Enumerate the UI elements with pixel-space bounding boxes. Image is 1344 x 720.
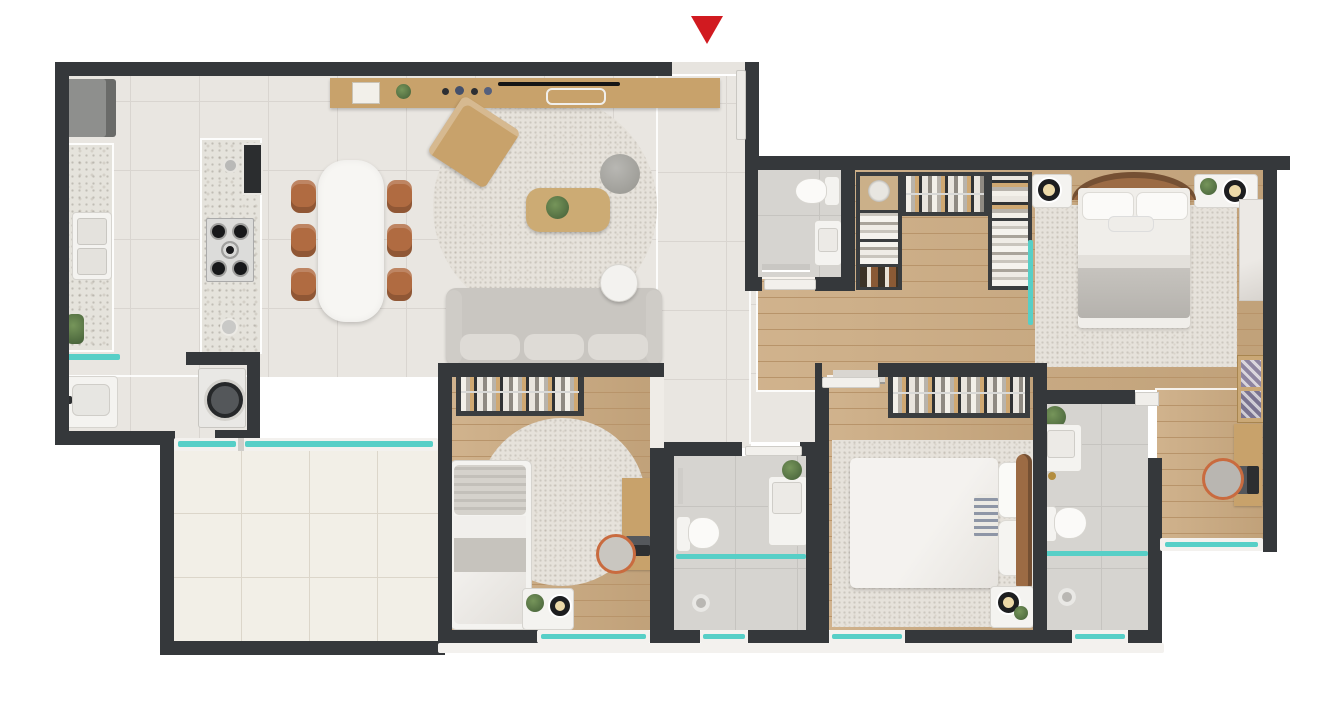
sideboard-books — [352, 82, 380, 104]
closet-folded-shelf — [860, 242, 898, 264]
wall — [660, 442, 742, 456]
closet-bag-shelf — [860, 213, 898, 239]
towel-shelf — [762, 264, 810, 270]
laundry-tub-basin — [72, 384, 110, 416]
balcony-glass-window — [245, 441, 433, 447]
burner-icon — [234, 225, 247, 238]
bedroom2-lamp-icon — [550, 596, 570, 616]
bedroom2-plant — [526, 594, 544, 612]
wall — [815, 277, 855, 291]
wall — [160, 641, 445, 655]
wall — [815, 363, 822, 377]
dining-chair — [291, 180, 316, 213]
coffee-table-plant — [546, 196, 569, 219]
master-blanket — [1078, 268, 1190, 318]
wall — [1033, 390, 1135, 404]
bedroom3-door-leaf — [822, 377, 880, 388]
dining-table — [318, 160, 384, 322]
laundry-glass-shelf — [66, 354, 120, 360]
refrigerator — [66, 79, 116, 137]
vase-icon — [471, 88, 478, 95]
window-mullion — [238, 438, 244, 451]
toilet-bowl — [1054, 507, 1087, 539]
hallbath-plant — [782, 460, 802, 480]
vase-icon — [455, 86, 464, 95]
gas-cooktop — [206, 218, 254, 282]
shower-glass-partition — [676, 554, 806, 559]
dining-chair — [291, 224, 316, 257]
bedroom3-plant — [1014, 606, 1028, 620]
sink-basin-bottom — [77, 248, 107, 275]
vase-icon — [484, 87, 492, 95]
sideboard-plant — [396, 84, 411, 99]
wall — [878, 363, 1047, 377]
wall — [806, 442, 829, 643]
side-pouf — [600, 154, 640, 194]
wall — [247, 352, 260, 432]
floor-plan-canvas — [0, 0, 1344, 720]
master-sheet-fold — [1078, 255, 1190, 268]
soundbar — [546, 88, 606, 105]
master-lamp-icon — [1224, 180, 1246, 202]
bedroom3-headboard — [1016, 454, 1032, 592]
bed2-sheet-fold — [454, 516, 526, 538]
vanity-faucet — [796, 520, 803, 527]
shower-drain-icon — [1058, 588, 1076, 606]
wall — [745, 277, 762, 291]
masterbath-window-glass — [1075, 634, 1125, 639]
nook-window-glass — [1165, 542, 1258, 547]
social-bathroom-door-leaf — [764, 279, 816, 290]
master-lumbar-pillow — [1108, 216, 1154, 232]
wall — [55, 62, 69, 445]
closet-shoe-shelf — [860, 267, 898, 287]
wall — [745, 62, 759, 170]
island-sink — [222, 320, 236, 334]
closet-glass-edge — [1028, 240, 1033, 325]
wall — [438, 363, 664, 377]
entry-threshold — [672, 62, 745, 74]
wall — [748, 630, 810, 643]
island-faucet — [225, 160, 236, 171]
wardrobe-rail — [461, 391, 579, 393]
master-bathroom-door-opening — [1135, 392, 1159, 406]
shelf-art-icon — [1241, 391, 1261, 418]
dining-chair — [387, 180, 412, 213]
brass-accessory-icon — [1048, 472, 1056, 480]
master-desk-chair — [1202, 458, 1244, 500]
wall — [55, 431, 175, 445]
balcony-glass-door — [178, 441, 236, 447]
sofa-cushion — [460, 334, 520, 360]
entrance-door-leaf — [736, 70, 746, 140]
tv — [498, 82, 620, 86]
round-side-table — [600, 264, 638, 302]
bed2-blanket — [454, 538, 526, 572]
burner-icon — [234, 262, 247, 275]
wall — [1033, 630, 1072, 643]
closet-folded-stacks — [992, 221, 1028, 286]
toilet-bowl — [688, 517, 720, 549]
shelf-art-icon — [1241, 360, 1261, 387]
washer-door-icon — [207, 382, 243, 418]
wall — [815, 377, 829, 452]
master-plant — [1200, 178, 1217, 195]
wall — [160, 445, 174, 655]
toilet-bowl — [795, 178, 827, 204]
bed3-lumbar-pillow — [974, 494, 998, 540]
wall — [438, 630, 538, 643]
wall — [841, 170, 855, 291]
wall — [650, 448, 674, 643]
sink-basin-top — [77, 218, 107, 245]
wine-niche — [242, 143, 263, 195]
closet-rail — [906, 193, 984, 195]
sofa-armrest — [646, 290, 662, 364]
wall — [905, 630, 1047, 643]
mirror-icon — [868, 180, 890, 202]
sofa-cushion — [588, 334, 648, 360]
wall — [55, 62, 672, 76]
hallbath-window-glass — [703, 634, 745, 639]
vanity-sink-basin — [1047, 430, 1075, 458]
wall — [745, 156, 1290, 170]
balcony-floor — [174, 448, 445, 641]
marble-panel — [1240, 200, 1264, 300]
vase-icon — [442, 88, 449, 95]
wall — [745, 156, 758, 291]
burner-icon — [212, 225, 225, 238]
bed2-ribbed-pillow — [454, 465, 526, 515]
dining-chair — [291, 268, 316, 301]
bed2-duvet — [454, 572, 526, 624]
entrance-arrow-icon — [691, 16, 723, 44]
dining-chair — [387, 268, 412, 301]
shower-glass-partition — [1042, 551, 1148, 556]
sofa-cushion — [524, 334, 584, 360]
wardrobe-rail — [893, 392, 1025, 394]
wall — [438, 377, 452, 643]
bedroom2-window-glass — [541, 634, 646, 639]
burner-icon — [212, 262, 225, 275]
dining-chair — [387, 224, 412, 257]
wall — [1033, 377, 1047, 630]
bedroom3-window-glass — [832, 634, 902, 639]
burner-icon — [223, 243, 237, 257]
bedroom2-desk-chair — [596, 534, 636, 574]
hall-bathroom-door-leaf — [745, 446, 802, 456]
master-lamp-icon — [1038, 179, 1060, 201]
bedroom2-door-opening — [650, 377, 664, 448]
exterior-sill — [438, 643, 1164, 653]
wall — [1263, 156, 1277, 552]
closet-hanging-clothes-side — [992, 176, 1028, 218]
vanity-sink-basin — [772, 482, 802, 514]
vanity-sink-basin — [818, 228, 838, 252]
towel-bar — [678, 468, 683, 504]
shower-drain-icon — [692, 594, 710, 612]
